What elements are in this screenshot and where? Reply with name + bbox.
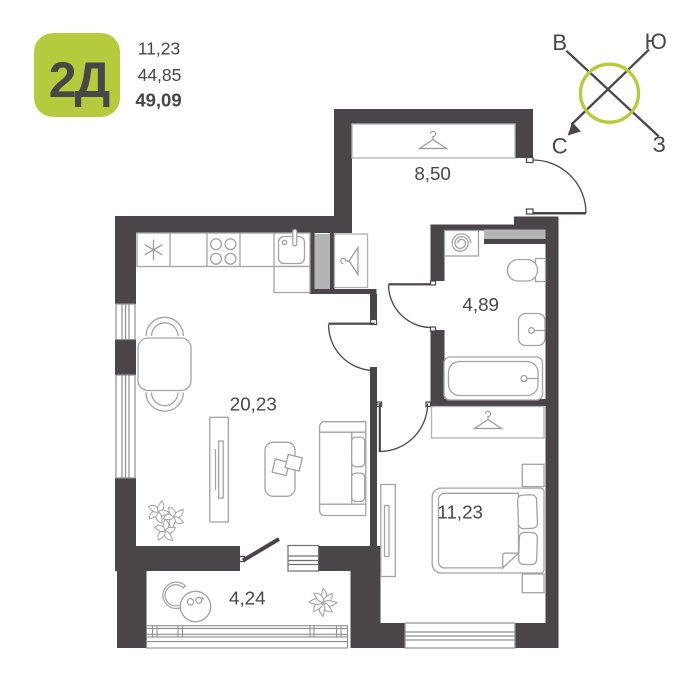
- svg-text:11,23: 11,23: [437, 501, 483, 522]
- svg-text:11,23: 11,23: [138, 39, 181, 59]
- svg-text:В: В: [552, 30, 567, 55]
- svg-text:Ю: Ю: [645, 29, 667, 54]
- svg-text:49,09: 49,09: [135, 90, 181, 111]
- svg-text:4,89: 4,89: [462, 294, 499, 315]
- svg-text:4,24: 4,24: [229, 588, 266, 609]
- svg-text:20,23: 20,23: [230, 394, 277, 415]
- svg-text:44,85: 44,85: [138, 65, 182, 85]
- svg-text:8,50: 8,50: [414, 163, 451, 184]
- svg-text:2Д: 2Д: [49, 52, 110, 108]
- svg-text:З: З: [653, 132, 666, 157]
- svg-text:С: С: [552, 133, 568, 158]
